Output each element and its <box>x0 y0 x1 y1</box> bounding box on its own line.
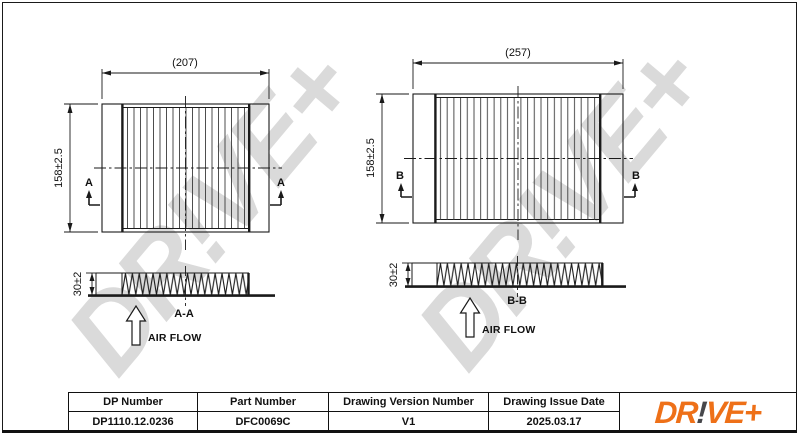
left-width-dimension <box>102 69 269 99</box>
svg-text:B: B <box>396 170 404 182</box>
brand-logo-box: DR!VE+ <box>619 392 797 432</box>
left-depth-dim-label: 30±2 <box>72 272 84 296</box>
right-width-dim-label: (257) <box>505 47 531 59</box>
airflow-arrow-icon <box>461 298 480 337</box>
right-height-dim-label: 158±2.5 <box>365 138 377 178</box>
left-section-title: A-A <box>174 308 194 320</box>
title-block-header-row: DP Number Part Number Drawing Version Nu… <box>69 393 619 412</box>
right-depth-dim-label: 30±2 <box>388 263 400 287</box>
svg-text:A: A <box>277 177 285 189</box>
svg-text:A: A <box>85 177 93 189</box>
section-pleats <box>437 263 602 286</box>
value-cell-drawing-version: V1 <box>329 412 489 431</box>
section-marker-a-left: A <box>85 177 100 205</box>
sheet-bottom-border <box>2 430 797 433</box>
section-pleats <box>122 273 248 295</box>
technical-drawing-canvas: (207) 158±2.5 A A 30±2 A-A AIR FLOW <box>0 0 800 390</box>
value-cell-issue-date: 2025.03.17 <box>489 412 619 431</box>
right-filter-front-view <box>404 86 633 240</box>
section-marker-a-right: A <box>270 177 285 205</box>
brand-logo: DR!VE+ <box>654 397 762 428</box>
section-marker-b-left: B <box>396 170 412 197</box>
left-filter-front-view <box>94 96 282 250</box>
left-height-dim-label: 158±2.5 <box>53 148 65 188</box>
header-cell-dp-number: DP Number <box>69 393 198 411</box>
header-cell-issue-date: Drawing Issue Date <box>489 393 619 411</box>
airflow-label: AIR FLOW <box>482 324 536 336</box>
value-cell-dp-number: DP1110.12.0236 <box>69 412 198 431</box>
logo-prefix: DR <box>654 395 698 430</box>
title-block-value-row: DP1110.12.0236 DFC0069C V1 2025.03.17 <box>69 412 619 431</box>
left-filter-section-view <box>88 266 275 306</box>
left-width-dim-label: (207) <box>172 57 198 69</box>
section-marker-b-right: B <box>624 170 640 197</box>
airflow-arrow-icon <box>127 306 146 345</box>
right-filter-section-view <box>405 256 626 297</box>
right-width-dimension <box>413 59 623 89</box>
left-depth-dimension <box>86 273 97 295</box>
right-section-title: B-B <box>507 295 527 307</box>
title-block-table: DP Number Part Number Drawing Version Nu… <box>68 392 620 432</box>
svg-text:B: B <box>632 170 640 182</box>
left-height-dimension <box>64 104 98 232</box>
header-cell-drawing-version: Drawing Version Number <box>329 393 489 411</box>
logo-suffix: VE+ <box>705 395 762 430</box>
airflow-label: AIR FLOW <box>148 332 202 344</box>
value-cell-part-number: DFC0069C <box>198 412 329 431</box>
drawing-sheet: { "drawing": { "watermark": "DR!VE+", "l… <box>0 0 800 436</box>
header-cell-part-number: Part Number <box>198 393 329 411</box>
right-depth-dimension <box>402 263 413 286</box>
